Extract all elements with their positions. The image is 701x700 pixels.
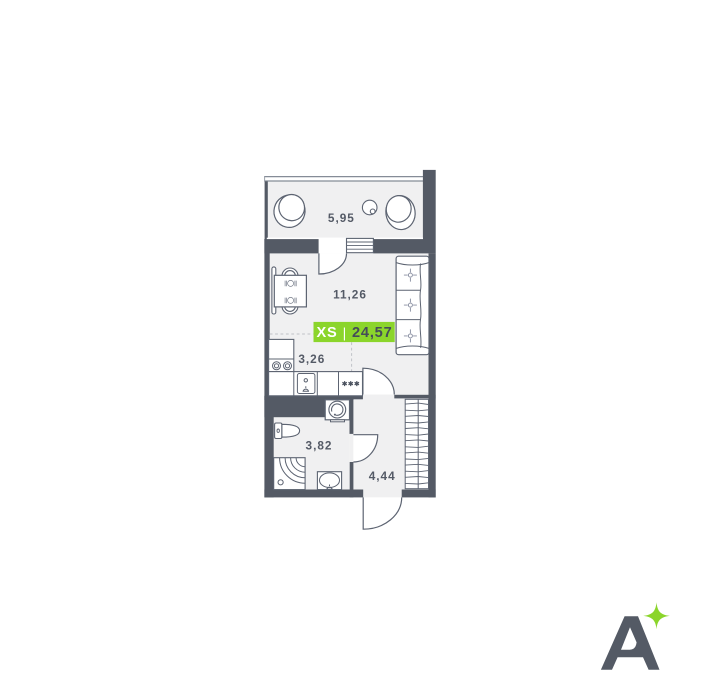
svg-text:3,26: 3,26	[298, 352, 325, 366]
svg-text:4,44: 4,44	[369, 469, 396, 483]
svg-text:24,57: 24,57	[352, 325, 393, 341]
svg-text:3,82: 3,82	[306, 438, 333, 452]
svg-text:11,26: 11,26	[333, 288, 367, 302]
svg-text:XS: XS	[316, 325, 337, 341]
svg-text:5,95: 5,95	[328, 211, 355, 225]
svg-text:|: |	[343, 324, 347, 340]
